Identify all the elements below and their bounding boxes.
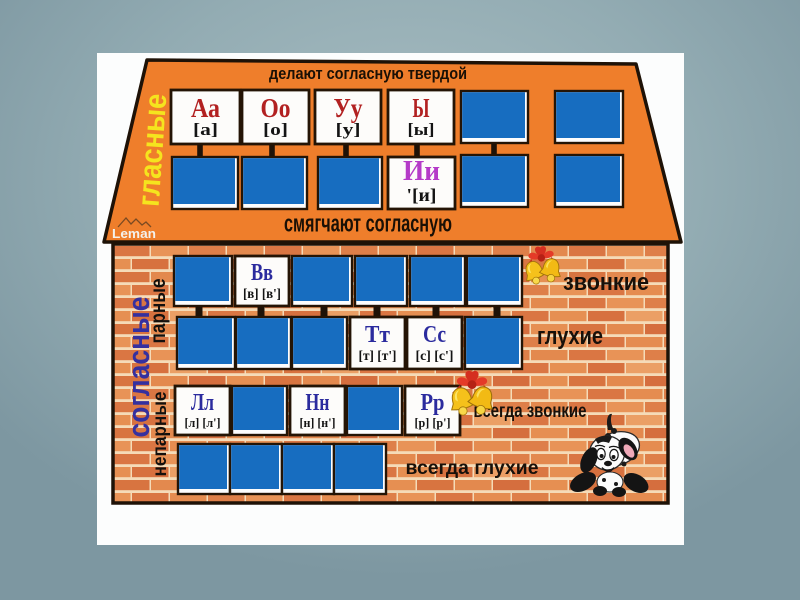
svg-text:Сс: Сс bbox=[423, 322, 446, 348]
svg-text:Рр: Рр bbox=[421, 390, 445, 416]
svg-text:Лл: Лл bbox=[191, 390, 214, 416]
svg-text:[ы]: [ы] bbox=[408, 120, 435, 139]
svg-text:глухие: глухие bbox=[537, 323, 603, 350]
svg-text:смягчают согласную: смягчают согласную bbox=[284, 211, 452, 238]
svg-text:Ии: Ии bbox=[403, 156, 440, 187]
svg-text:Оо: Оо bbox=[261, 93, 291, 123]
svg-text:[о]: [о] bbox=[263, 120, 288, 139]
svg-text:[в] [в']: [в] [в'] bbox=[243, 287, 281, 302]
svg-text:[т] [т']: [т] [т'] bbox=[359, 349, 397, 364]
svg-text:Leman: Leman bbox=[112, 226, 156, 241]
svg-text:всегда глухие: всегда глухие bbox=[406, 458, 539, 479]
svg-text:Уу: Уу bbox=[334, 93, 363, 123]
svg-text:делают согласную твердой: делают согласную твердой bbox=[269, 64, 467, 83]
svg-text:[у]: [у] bbox=[336, 120, 361, 139]
svg-text:[л] [л']: [л] [л'] bbox=[185, 415, 221, 430]
svg-text:Вв: Вв bbox=[251, 260, 273, 286]
svg-text:Ы: Ы bbox=[413, 93, 430, 123]
svg-text:[н] [н']: [н] [н'] bbox=[300, 415, 336, 430]
svg-text:Тт: Тт bbox=[365, 322, 390, 348]
svg-text:Аа: Аа bbox=[191, 93, 220, 123]
svg-text:[а]: [а] bbox=[193, 120, 218, 139]
svg-text:[р] [р']: [р] [р'] bbox=[415, 415, 451, 430]
svg-text:[с] [с']: [с] [с'] bbox=[416, 349, 454, 364]
svg-text:'[и]: '[и] bbox=[407, 185, 437, 205]
svg-text:парные: парные bbox=[147, 279, 170, 344]
svg-text:звонкие: звонкие bbox=[563, 269, 649, 296]
svg-text:непарные: непарные bbox=[150, 392, 171, 477]
svg-text:Нн: Нн bbox=[306, 390, 330, 416]
